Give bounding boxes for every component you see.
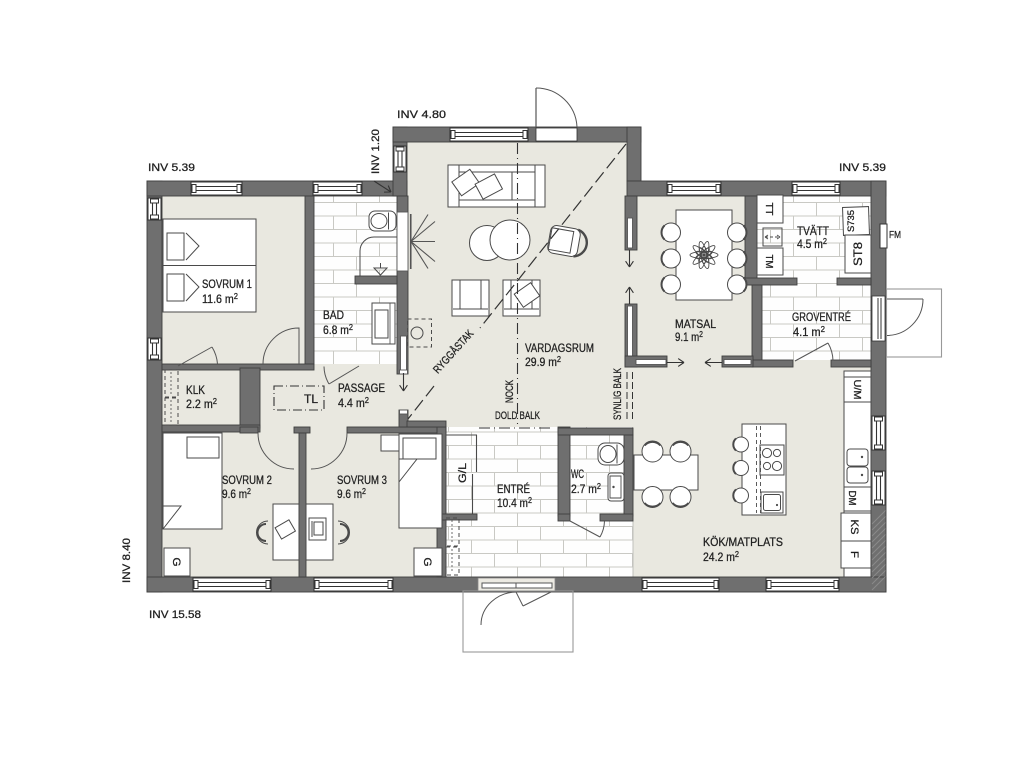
svg-text:4.5 m2: 4.5 m2 [797, 236, 827, 251]
svg-text:G: G [421, 558, 433, 567]
svg-text:TT: TT [763, 203, 774, 216]
svg-text:DOLD BALK: DOLD BALK [495, 410, 540, 422]
svg-text:9.6 m2: 9.6 m2 [337, 486, 366, 501]
svg-text:MATSAL: MATSAL [675, 317, 716, 331]
svg-text:INV 5.39: INV 5.39 [839, 162, 886, 174]
svg-text:GROVENTRÉ: GROVENTRÉ [792, 309, 851, 324]
svg-text:ENTRÉ: ENTRÉ [497, 481, 530, 496]
svg-text:F: F [848, 551, 860, 558]
svg-text:29.9 m2: 29.9 m2 [525, 354, 561, 369]
svg-text:4.1 m2: 4.1 m2 [793, 324, 825, 339]
svg-text:FM: FM [889, 230, 901, 241]
svg-text:10.4 m2: 10.4 m2 [497, 495, 532, 510]
svg-text:9.1 m2: 9.1 m2 [675, 329, 703, 344]
svg-text:KÖK/MATPLATS: KÖK/MATPLATS [703, 535, 783, 549]
svg-text:SOVRUM 1: SOVRUM 1 [202, 277, 252, 291]
svg-text:WC: WC [571, 467, 584, 481]
svg-text:SYNLIG BALK: SYNLIG BALK [612, 368, 624, 420]
svg-text:PASSAGE: PASSAGE [338, 381, 385, 395]
svg-text:SOVRUM 2: SOVRUM 2 [222, 473, 272, 487]
svg-text:SOVRUM 3: SOVRUM 3 [337, 473, 387, 487]
svg-text:2.2 m2: 2.2 m2 [186, 396, 217, 411]
svg-text:INV 8.40: INV 8.40 [121, 538, 133, 583]
svg-text:TL: TL [304, 392, 318, 406]
svg-text:6.8 m2: 6.8 m2 [323, 322, 353, 337]
svg-text:INV 4.80: INV 4.80 [397, 109, 446, 121]
svg-text:24.2 m2: 24.2 m2 [703, 549, 739, 564]
svg-text:KS: KS [848, 520, 860, 535]
svg-text:INV 1.20: INV 1.20 [370, 129, 382, 174]
svg-text:S735: S735 [846, 210, 856, 232]
svg-text:4.4 m2: 4.4 m2 [338, 395, 369, 410]
svg-text:KLK: KLK [186, 383, 205, 397]
svg-text:G/L: G/L [457, 463, 469, 483]
svg-text:G: G [170, 558, 182, 567]
svg-text:INV 5.39: INV 5.39 [148, 162, 195, 174]
svg-text:11.6 m2: 11.6 m2 [202, 291, 238, 306]
svg-text:DM: DM [846, 491, 857, 506]
svg-text:2.7 m2: 2.7 m2 [571, 481, 601, 496]
svg-text:U/M: U/M [851, 380, 862, 400]
svg-text:VARDAGSRUM: VARDAGSRUM [525, 341, 594, 355]
svg-text:TM: TM [763, 255, 774, 269]
svg-text:ST8: ST8 [851, 242, 865, 266]
svg-text:BAD: BAD [323, 308, 344, 322]
svg-text:INV 15.58: INV 15.58 [149, 609, 201, 621]
svg-text:NOCK: NOCK [504, 380, 516, 403]
svg-text:9.6 m2: 9.6 m2 [222, 486, 251, 501]
